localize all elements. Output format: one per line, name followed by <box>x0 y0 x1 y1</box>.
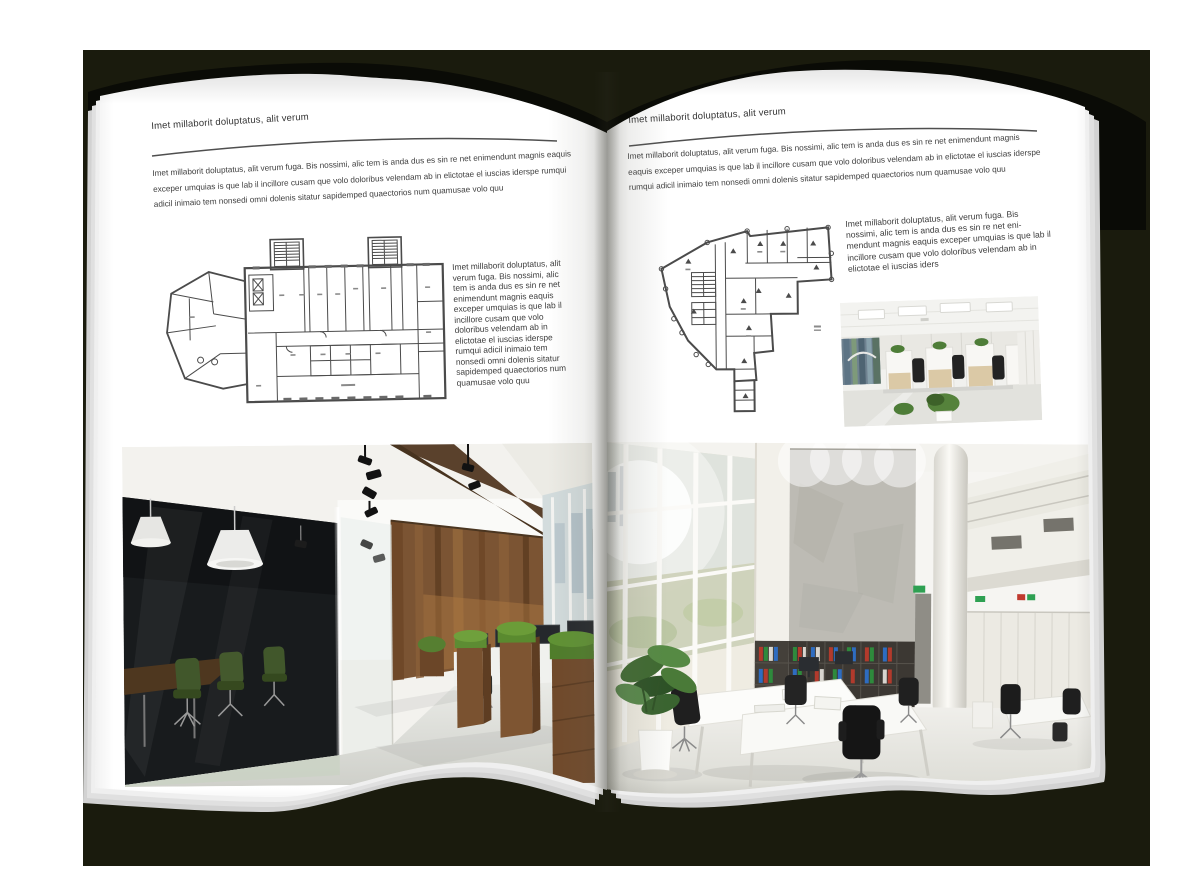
photo-office-bay-small <box>840 296 1042 427</box>
right-page-header: Imet millaborit doluptatus, alit verum <box>628 99 908 126</box>
floor-plan-left-drawing <box>158 231 454 419</box>
book-spine-shadow <box>594 72 620 812</box>
photo-office-white-loft-art <box>602 442 1094 797</box>
photo-office-wood-loft-art <box>122 443 595 787</box>
left-page-header: Imet millaborit doluptatus, alit verum <box>151 104 431 132</box>
left-page: Imet millaborit doluptatus, alit verum I… <box>93 70 610 818</box>
photo-office-wood-loft <box>122 443 595 787</box>
floor-plan-right-drawing <box>645 217 841 417</box>
right-page: Imet millaborit doluptatus, alit verum I… <box>604 62 1096 810</box>
floor-plan-right <box>645 217 841 417</box>
floor-plan-left <box>158 231 454 419</box>
magazine-mockup-stage: Imet millaborit doluptatus, alit verum I… <box>0 0 1200 891</box>
photo-office-bay-small-art <box>840 296 1042 427</box>
photo-office-white-loft <box>602 442 1094 797</box>
left-side-paragraph: Imet millaborit doluptatus, alit verum f… <box>452 257 579 388</box>
right-side-paragraph: Imet millaborit doluptatus, alit verum f… <box>845 207 1053 275</box>
